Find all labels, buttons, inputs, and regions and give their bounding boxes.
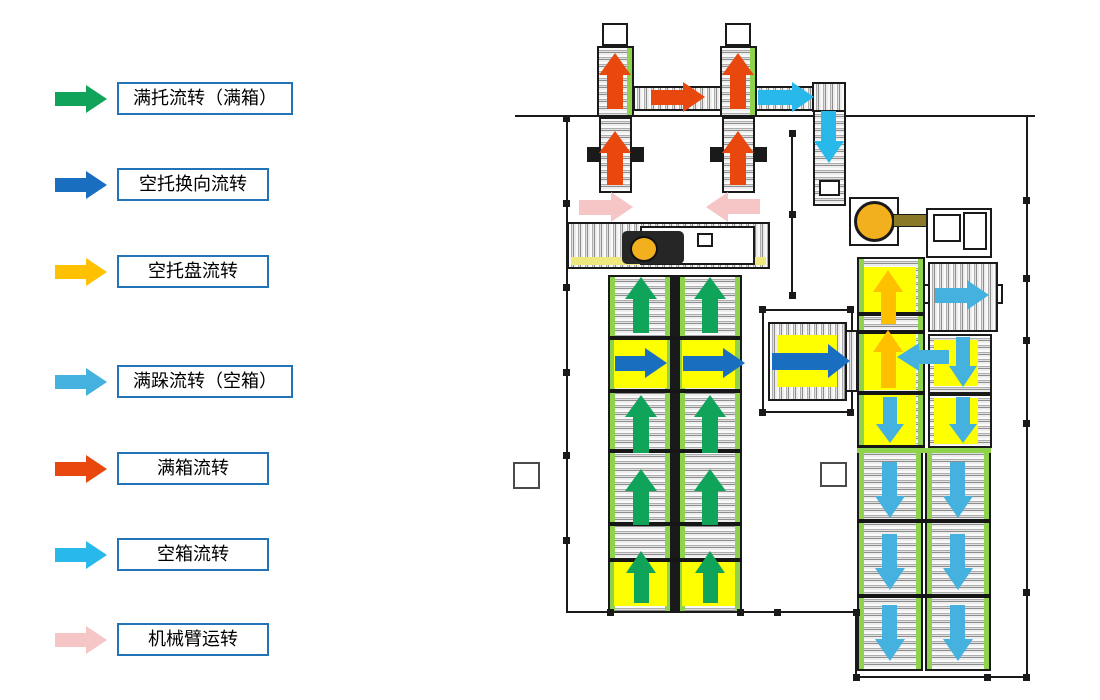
right-lower-top-strip — [857, 448, 991, 453]
empty-pallet-reverse-flow-arrow-icon — [55, 171, 107, 199]
flow-arrow-empty-pallet-reverse — [683, 348, 745, 378]
palletizer-machine-unit-b — [963, 212, 987, 250]
central-joint — [608, 389, 742, 393]
central-lane-divider — [670, 275, 679, 613]
corner-transfer-module — [812, 82, 846, 112]
flow-arrow-full-stack — [875, 534, 905, 590]
right-lower-joint — [857, 594, 991, 598]
wall-marker — [853, 609, 860, 616]
wall-marker — [789, 292, 796, 299]
full-box-flow-label: 满箱流转 — [117, 452, 269, 485]
palletizer-robot — [854, 201, 895, 242]
depalletizer-small-unit — [697, 233, 713, 247]
flow-arrow-full-pallet — [625, 469, 657, 525]
flow-arrow-full-stack — [875, 605, 905, 661]
flow-arrow-full-box — [722, 131, 754, 185]
robot-joint — [630, 236, 658, 262]
flow-arrow-full-stack — [943, 605, 973, 661]
flow-arrow-empty-tray — [873, 270, 903, 324]
empty-tray-flow-label: 空托盘流转 — [117, 255, 269, 288]
green-guide-strip — [916, 450, 921, 669]
green-guide-strip — [984, 450, 989, 669]
flow-arrow-full-pallet — [694, 277, 726, 333]
machine-handle-right — [996, 284, 1003, 304]
flow-arrow-full-pallet — [625, 395, 657, 453]
layout-diagram-canvas: 满托流转（满箱）空托换向流转空托盘流转满跺流转（空箱）满箱流转空箱流转机械臂运转 — [0, 0, 1100, 700]
wall-marker — [774, 609, 781, 616]
legend-row-empty-pallet-reverse-flow: 空托换向流转 — [55, 168, 269, 201]
legend-row-empty-box-flow: 空箱流转 — [55, 538, 269, 571]
empty-tray-flow-arrow-icon — [55, 258, 107, 286]
flow-arrow-full-stack — [875, 462, 905, 518]
legend-row-full-stack-flow: 满跺流转（空箱） — [55, 365, 293, 398]
flow-arrow-full-stack — [949, 337, 977, 387]
wall-marker — [563, 284, 570, 291]
wall-marker — [853, 674, 860, 681]
empty-pallet-reverse-flow-label: 空托换向流转 — [117, 168, 269, 201]
empty-box-flow-label: 空箱流转 — [117, 538, 269, 571]
wall-marker — [789, 211, 796, 218]
wall-marker — [563, 537, 570, 544]
empty-box-flow-arrow-icon — [55, 541, 107, 569]
flow-arrow-full-box — [599, 131, 631, 185]
flow-arrow-full-box — [651, 82, 705, 112]
flow-arrow-full-stack — [897, 343, 949, 371]
robot-arm-flow-label: 机械臂运转 — [117, 623, 269, 656]
wall-marker — [1023, 420, 1030, 427]
flow-arrow-full-stack — [949, 397, 977, 443]
green-guide-strip — [927, 450, 932, 669]
wall-marker — [984, 674, 991, 681]
right-joint — [857, 391, 925, 395]
flow-arrow-full-pallet — [625, 277, 657, 333]
full-pallet-flow-arrow-icon — [55, 85, 107, 113]
full-stack-flow-label: 满跺流转（空箱） — [117, 365, 293, 398]
wall-marker — [789, 130, 796, 137]
flow-arrow-empty-box — [814, 111, 844, 163]
tower2-motor-right — [754, 147, 767, 162]
flow-arrow-full-stack — [943, 462, 973, 518]
flow-arrow-full-box — [599, 53, 631, 109]
frame-post — [847, 409, 854, 416]
flow-arrow-full-stack — [876, 397, 904, 443]
full-pallet-flow-label: 满托流转（满箱） — [117, 82, 293, 115]
wall-marker — [563, 452, 570, 459]
building-column — [820, 462, 847, 487]
tower1-top-frame — [602, 23, 628, 46]
flow-arrow-empty-pallet-reverse — [772, 344, 850, 378]
flow-arrow-empty-box — [758, 82, 814, 112]
full-box-flow-arrow-icon — [55, 455, 107, 483]
wall-marker — [563, 200, 570, 207]
legend-row-robot-arm-flow: 机械臂运转 — [55, 623, 269, 656]
wall-marker — [1023, 337, 1030, 344]
flow-arrow-full-pallet — [695, 551, 725, 603]
depalletizer-robot — [622, 231, 684, 264]
flow-arrow-full-pallet — [694, 469, 726, 525]
right-lower-joint — [857, 519, 991, 523]
machine-handle-left — [923, 284, 930, 304]
wall-marker — [1023, 589, 1030, 596]
tower2-top-frame — [725, 23, 751, 46]
flow-arrow-robot-arm — [579, 192, 633, 222]
building-column — [513, 462, 540, 489]
green-guide-strip — [859, 450, 864, 669]
wall-marker — [563, 369, 570, 376]
legend-row-empty-tray-flow: 空托盘流转 — [55, 255, 269, 288]
flow-arrow-full-stack — [935, 280, 989, 310]
frame-post — [759, 306, 766, 313]
wall-marker — [1023, 275, 1030, 282]
full-stack-flow-arrow-icon — [55, 368, 107, 396]
wall-line — [855, 676, 1028, 678]
wall-marker — [607, 609, 614, 616]
flow-arrow-full-pallet — [626, 551, 656, 603]
wall-marker — [737, 609, 744, 616]
frame-post — [847, 306, 854, 313]
wall-marker — [563, 115, 570, 122]
wall-line — [515, 115, 1035, 117]
wall-marker — [1023, 197, 1030, 204]
flow-arrow-robot-arm — [706, 192, 760, 222]
wall-marker — [1023, 674, 1030, 681]
central-joint — [608, 336, 742, 340]
flow-arrow-full-stack — [943, 534, 973, 590]
flow-arrow-full-box — [722, 53, 754, 109]
palletizer-machine-unit-a — [933, 214, 961, 242]
frame-post — [759, 409, 766, 416]
flow-arrow-empty-pallet-reverse — [615, 348, 667, 378]
down-conveyor-end-box — [819, 180, 840, 196]
flow-arrow-full-pallet — [694, 395, 726, 453]
legend-row-full-box-flow: 满箱流转 — [55, 452, 269, 485]
robot-arm-flow-arrow-icon — [55, 626, 107, 654]
legend-row-full-pallet-flow: 满托流转（满箱） — [55, 82, 293, 115]
tower1-motor-right — [631, 147, 644, 162]
